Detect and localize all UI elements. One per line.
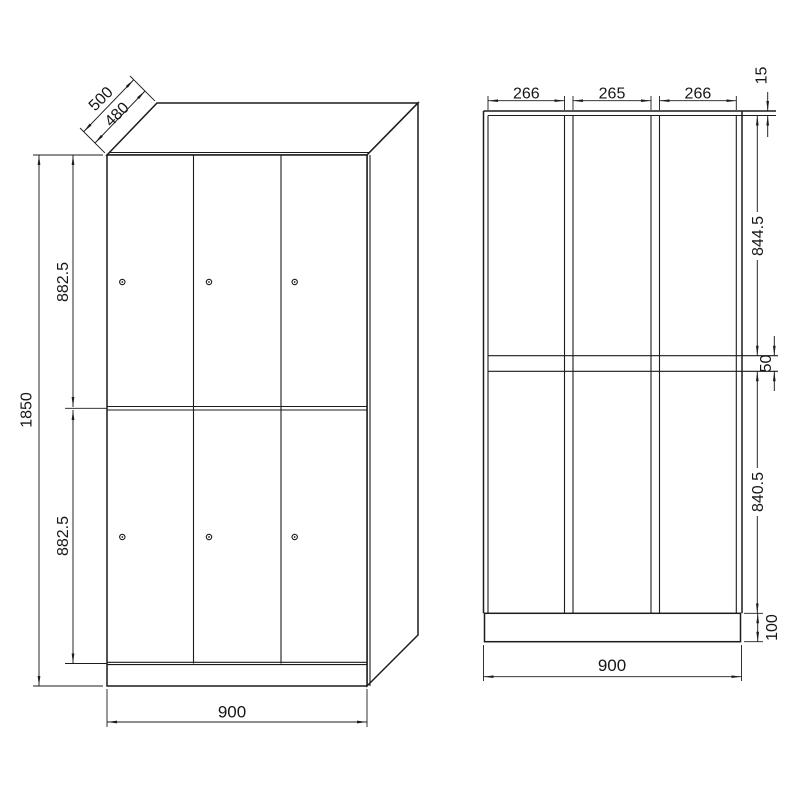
dim-upper-door: 882.5: [55, 155, 107, 408]
lock-icon: [206, 534, 211, 539]
dim-width-section: 900: [484, 645, 742, 681]
carcass-structure: [484, 111, 779, 642]
extension-line: [80, 128, 105, 153]
dim-label-total-height: 1850: [19, 392, 36, 428]
dim-width-isometric: 900: [107, 689, 367, 727]
dim-label-bay-right: 266: [685, 86, 712, 103]
dim-label-bay-left: 266: [513, 86, 540, 103]
dim-label-plinth-height: 100: [764, 614, 781, 641]
front-section-view: 266 265 266 15 844.5 50 840.5: [484, 67, 782, 682]
lock-icon: [292, 279, 297, 284]
plinth: [485, 613, 741, 641]
dim-plinth-height: 100: [744, 613, 781, 641]
lock-icon: [120, 279, 125, 284]
dim-total-height: 1850: [19, 155, 103, 686]
dim-label-lower-door: 882.5: [55, 516, 72, 556]
dim-label-bay-middle: 265: [599, 86, 626, 103]
lock-icon: [292, 534, 297, 539]
dim-label-top-clearance: 15: [754, 67, 771, 85]
cabinet-body: [107, 103, 418, 686]
dim-label-upper-door: 882.5: [55, 262, 72, 302]
drawing-canvas: 500 480 1850 882.5 882.5 900: [0, 0, 800, 800]
top-panel: [107, 103, 418, 155]
dim-label-lower-compartment: 840.5: [750, 472, 767, 512]
dim-upper-compartment: 844.5: [750, 116, 767, 356]
lock-icon: [120, 534, 125, 539]
lock-icon: [206, 279, 211, 284]
dim-top-clearance: 15: [754, 67, 771, 138]
dim-label-shelf-gap: 50: [758, 355, 775, 373]
dim-label-width: 900: [598, 656, 626, 675]
locker-technical-drawing: 500 480 1850 882.5 882.5 900: [0, 0, 800, 800]
dim-label-upper-compartment: 844.5: [750, 216, 767, 256]
side-panel: [367, 103, 418, 686]
dim-lower-door: 882.5: [55, 410, 107, 664]
dim-lower-compartment: 840.5: [750, 371, 767, 613]
isometric-view: 500 480 1850 882.5 882.5 900: [19, 76, 418, 727]
cabinet-front-outline: [107, 155, 367, 686]
dim-label-width: 900: [218, 703, 246, 722]
dim-shelf-gap: 50: [758, 336, 775, 391]
dim-bays: 266 265 266: [488, 86, 736, 111]
